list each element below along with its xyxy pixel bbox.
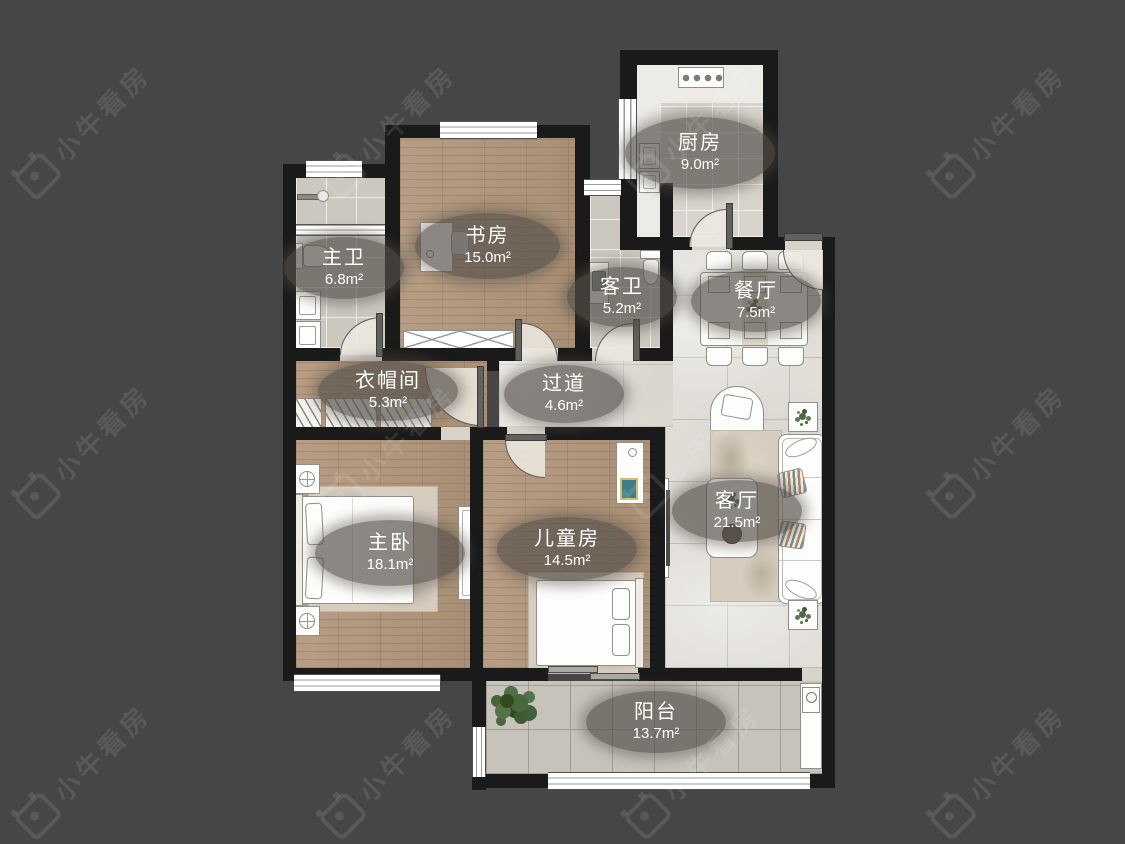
watermark-text: 小牛看房 — [44, 375, 158, 489]
watermark-text: 小牛看房 — [44, 695, 158, 809]
watermark-text: 小牛看房 — [654, 375, 768, 489]
xiaoniu-logo-icon — [317, 470, 368, 521]
xiaoniu-logo-icon — [927, 150, 978, 201]
watermark-text: 小牛看房 — [349, 375, 463, 489]
watermark-text: 小牛看房 — [44, 55, 158, 169]
watermark-text: 小牛看房 — [349, 695, 463, 809]
watermark-text: 小牛看房 — [654, 695, 768, 809]
xiaoniu-logo-icon — [12, 790, 63, 841]
xiaoniu-logo-icon — [317, 150, 368, 201]
xiaoniu-logo-icon — [12, 470, 63, 521]
xiaoniu-logo-icon — [927, 790, 978, 841]
watermark-layer: 小牛看房 小牛看房 小牛看房 小牛看房 小牛看房 小牛看房 小牛看房 小牛看房 … — [0, 0, 1125, 844]
watermark-text: 小牛看房 — [654, 55, 768, 169]
watermark-text: 小牛看房 — [349, 55, 463, 169]
watermark-text: 小牛看房 — [959, 695, 1073, 809]
xiaoniu-logo-icon — [927, 470, 978, 521]
floorplan-canvas: 厨房 9.0m² 主卫 6.8m² 书房 15.0m² 客卫 5.2m² 餐厅 … — [0, 0, 1125, 844]
xiaoniu-logo-icon — [12, 150, 63, 201]
xiaoniu-logo-icon — [622, 790, 673, 841]
watermark-text: 小牛看房 — [959, 375, 1073, 489]
xiaoniu-logo-icon — [317, 790, 368, 841]
xiaoniu-logo-icon — [622, 470, 673, 521]
watermark-text: 小牛看房 — [959, 55, 1073, 169]
xiaoniu-logo-icon — [622, 150, 673, 201]
